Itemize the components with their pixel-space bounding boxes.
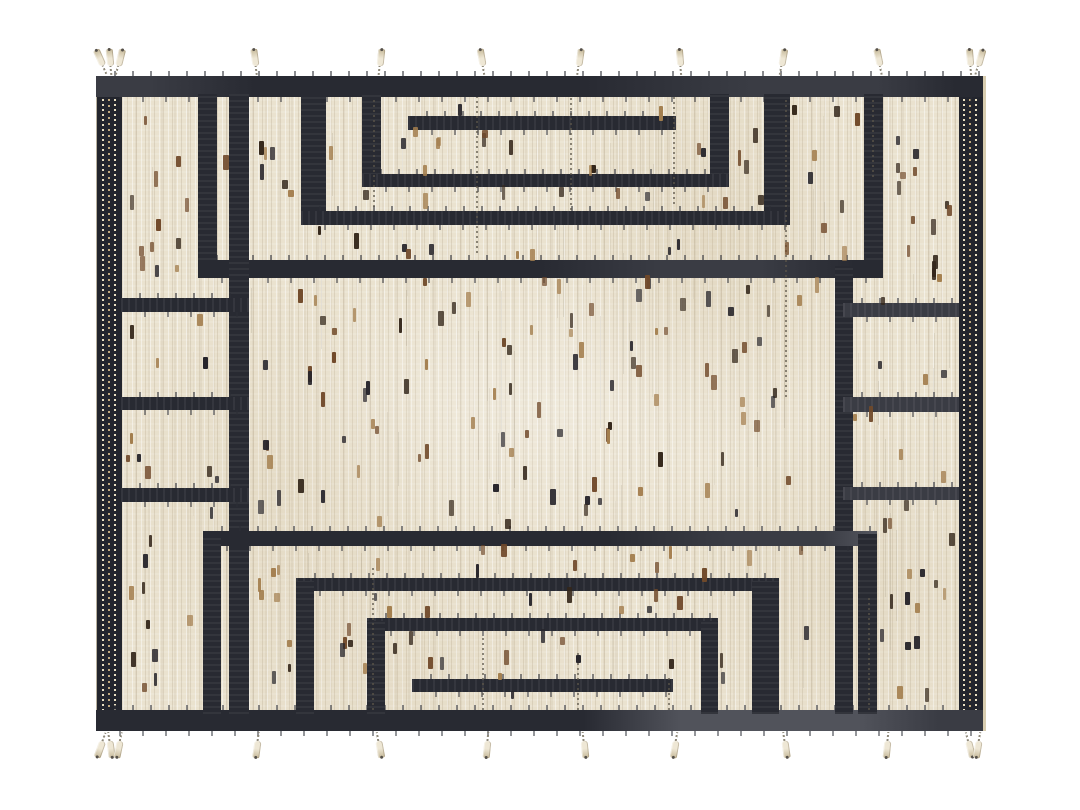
wool-fleck	[387, 606, 392, 618]
wool-fleck	[366, 381, 370, 395]
weave-streak	[693, 265, 694, 299]
wool-fleck	[812, 150, 817, 161]
weave-streak	[890, 513, 891, 650]
wool-fleck	[923, 374, 928, 385]
tassel-tuft	[106, 741, 115, 759]
weave-streak	[639, 373, 640, 444]
weave-streak	[398, 432, 399, 486]
wool-fleck	[840, 200, 844, 213]
wool-fleck	[569, 329, 573, 337]
weave-streak	[610, 143, 611, 274]
wool-fleck	[308, 371, 312, 385]
wool-fleck	[550, 489, 556, 505]
wool-fleck	[606, 428, 610, 442]
weave-streak	[619, 110, 620, 227]
wool-fleck	[754, 420, 760, 432]
wool-fleck	[425, 359, 428, 370]
tassel-tuft	[781, 741, 790, 759]
tassel-string	[965, 732, 969, 741]
wool-fleck	[505, 519, 511, 529]
wool-fleck	[523, 466, 527, 480]
weave-streak	[612, 593, 613, 692]
wool-fleck	[702, 568, 707, 582]
tassel-string	[879, 66, 883, 75]
pattern-bar-right-box-line-2	[843, 397, 959, 412]
wool-fleck	[376, 558, 380, 571]
tassel-tuft	[575, 49, 584, 67]
wool-fleck	[883, 518, 887, 533]
wool-fleck	[449, 500, 454, 516]
pattern-bar-u1b-top-bar	[203, 531, 877, 546]
wool-fleck	[647, 278, 651, 289]
weave-streak	[501, 291, 502, 448]
tassel-string	[115, 66, 119, 75]
tassel-tuft	[965, 740, 976, 758]
pattern-bar-u2-right-leg	[710, 94, 729, 187]
fringe-tassel	[666, 731, 684, 759]
wool-fleck	[363, 663, 367, 674]
fringe-tassel	[248, 731, 265, 759]
weave-streak	[615, 501, 616, 671]
wool-fleck	[210, 507, 213, 519]
weave-streak	[724, 551, 725, 595]
wool-fleck	[589, 303, 594, 316]
wool-fleck	[287, 640, 292, 647]
wool-fleck	[677, 239, 680, 250]
wool-fleck	[418, 454, 421, 462]
wool-fleck	[509, 383, 512, 395]
wool-fleck	[608, 422, 612, 430]
wool-fleck	[598, 498, 602, 505]
weave-streak	[563, 217, 564, 317]
wool-fleck	[842, 246, 847, 261]
tassel-string	[376, 732, 380, 741]
wool-fleck	[567, 587, 572, 603]
pattern-bar-right-box-line-3	[843, 487, 959, 500]
wool-fleck	[890, 594, 893, 609]
tassel-string	[109, 66, 112, 75]
wool-fleck	[137, 454, 141, 462]
wool-fleck	[907, 245, 910, 257]
fringe-tassel	[570, 48, 587, 76]
weave-streak	[489, 388, 490, 479]
weave-streak	[934, 333, 935, 498]
wool-fleck	[318, 226, 321, 235]
fringe-tassel	[473, 48, 491, 76]
pattern-bar-u2-bottom-bar	[362, 174, 729, 187]
wool-fleck	[507, 345, 512, 355]
wool-fleck	[913, 167, 917, 176]
wool-fleck	[428, 657, 433, 669]
wool-fleck	[645, 192, 650, 201]
wool-fleck	[263, 360, 268, 370]
wool-fleck	[423, 165, 427, 176]
wool-fleck	[267, 455, 273, 469]
tassel-string	[886, 732, 889, 741]
pattern-bar-left-divider	[229, 94, 249, 714]
weave-streak	[759, 511, 760, 646]
warp-string	[868, 596, 870, 710]
warp-string	[668, 676, 670, 710]
wool-fleck	[509, 448, 514, 457]
wool-fleck	[404, 379, 409, 394]
wool-fleck	[401, 138, 406, 149]
wool-fleck	[767, 305, 770, 317]
weave-streak	[653, 164, 654, 223]
wool-fleck	[705, 363, 709, 377]
wool-fleck	[668, 247, 671, 255]
tassel-tuft	[873, 49, 883, 67]
pattern-bar-inner-bar-top	[408, 116, 676, 130]
wool-fleck	[638, 487, 643, 496]
wool-fleck	[425, 444, 429, 459]
wool-fleck	[853, 414, 857, 421]
tassel-string	[486, 732, 489, 741]
wool-fleck	[152, 649, 158, 662]
tassel-tuft	[882, 741, 891, 759]
tassel-string	[782, 732, 785, 741]
wool-fleck	[573, 354, 578, 370]
wool-fleck	[185, 198, 189, 212]
fringe-tassel	[479, 731, 496, 758]
wool-fleck	[223, 155, 229, 170]
wool-fleck	[354, 233, 359, 249]
pattern-bar-left-box-line-2	[121, 397, 249, 410]
wool-fleck	[363, 190, 369, 200]
wool-fleck	[934, 580, 938, 588]
wool-fleck	[155, 265, 159, 277]
weave-streak	[407, 240, 408, 296]
wool-fleck	[905, 592, 910, 605]
wool-fleck	[792, 105, 797, 115]
wool-fleck	[937, 274, 942, 282]
wool-fleck	[815, 277, 819, 293]
fringe-tassel	[869, 48, 888, 76]
weave-streak	[903, 381, 904, 509]
tassel-tuft	[669, 740, 679, 758]
wool-fleck	[493, 484, 499, 492]
warp-string	[476, 97, 478, 253]
wool-fleck	[288, 664, 291, 672]
wool-fleck	[176, 238, 181, 249]
product-photo	[0, 0, 1080, 810]
wool-fleck	[156, 219, 161, 231]
weave-streak	[332, 133, 333, 196]
weave-streak	[243, 213, 244, 374]
wool-fleck	[493, 388, 496, 400]
pattern-bar-u2-left-leg	[362, 94, 381, 187]
wool-fleck	[530, 249, 535, 261]
wool-fleck	[537, 402, 541, 418]
wool-fleck	[482, 133, 486, 147]
wool-fleck	[130, 195, 134, 210]
wool-fleck	[579, 342, 584, 358]
weave-streak	[308, 553, 309, 652]
wool-fleck	[423, 278, 427, 286]
wool-fleck	[154, 673, 157, 686]
wool-fleck	[150, 242, 154, 252]
wool-fleck	[144, 116, 147, 125]
wool-fleck	[215, 476, 219, 483]
weave-streak	[621, 485, 622, 608]
wool-fleck	[786, 476, 791, 485]
wool-fleck	[808, 172, 813, 184]
wool-fleck	[270, 147, 275, 160]
pattern-bar-u2b-right-leg	[701, 621, 718, 714]
wool-fleck	[501, 544, 507, 557]
wool-fleck	[821, 223, 827, 233]
weave-streak	[933, 368, 934, 511]
wool-fleck	[406, 249, 411, 259]
weave-streak	[652, 284, 653, 397]
wool-fleck	[834, 106, 840, 117]
pattern-bar-u1b-left-leg	[203, 534, 221, 714]
wool-fleck	[541, 629, 545, 643]
wool-fleck	[277, 565, 280, 575]
tassel-tuft	[93, 49, 106, 67]
wool-fleck	[321, 490, 325, 503]
pattern-bar-right-box-line-1	[843, 303, 959, 317]
wool-fleck	[721, 452, 724, 466]
wool-fleck	[271, 568, 276, 577]
weave-streak	[815, 149, 816, 251]
tassel-tuft	[965, 49, 973, 67]
wool-fleck	[126, 455, 130, 462]
wool-fleck	[258, 578, 261, 592]
fringe-tassel	[776, 731, 793, 759]
wool-fleck	[785, 242, 789, 255]
wool-fleck	[905, 642, 911, 650]
wool-fleck	[669, 659, 674, 669]
tassel-tuft	[93, 740, 105, 758]
tassel-tuft	[580, 741, 589, 759]
tassel-tuft	[113, 740, 123, 758]
wool-fleck	[511, 691, 514, 699]
wool-fleck	[899, 449, 903, 460]
tassel-tuft	[482, 741, 491, 759]
wool-fleck	[576, 655, 581, 663]
wool-fleck	[797, 295, 802, 306]
wool-fleck	[525, 430, 529, 438]
wool-fleck	[557, 279, 561, 294]
wool-fleck	[175, 265, 179, 272]
weave-streak	[661, 130, 662, 210]
wool-fleck	[592, 477, 597, 492]
wool-fleck	[945, 201, 949, 209]
wool-fleck	[471, 417, 475, 429]
wool-fleck	[619, 606, 624, 614]
tassel-string	[101, 732, 106, 741]
wool-fleck	[570, 313, 573, 328]
wool-fleck	[298, 479, 304, 493]
fringe-tassel	[109, 731, 128, 759]
fringe-tassel	[370, 731, 388, 759]
wool-fleck	[907, 569, 912, 579]
wool-fleck	[740, 397, 745, 407]
wool-fleck	[573, 560, 577, 571]
fringe-tassel	[962, 48, 978, 75]
weave-streak	[152, 167, 153, 249]
wool-fleck	[413, 127, 418, 137]
wool-fleck	[949, 533, 955, 546]
tassel-string	[102, 65, 107, 74]
pattern-bar-u1b-right-leg	[858, 534, 877, 714]
rug	[96, 76, 983, 731]
weave-streak	[823, 116, 824, 238]
pattern-bar-u15b-top-bar	[296, 578, 779, 591]
weave-streak	[193, 352, 194, 516]
wool-fleck	[357, 465, 360, 478]
weave-streak	[583, 285, 584, 345]
wool-fleck	[560, 637, 565, 645]
weave-streak	[402, 149, 403, 240]
wool-fleck	[509, 140, 513, 155]
weave-streak	[575, 449, 576, 605]
wool-fleck	[329, 146, 333, 160]
wool-fleck	[187, 615, 193, 626]
pattern-bar-u15b-right-leg	[752, 581, 779, 714]
wool-fleck	[452, 302, 456, 314]
wool-fleck	[154, 171, 158, 187]
fringe-tassel	[372, 48, 389, 75]
wool-fleck	[931, 219, 936, 235]
warp-string	[872, 97, 874, 177]
wool-fleck	[869, 406, 873, 422]
wool-fleck	[941, 471, 946, 483]
wool-fleck	[399, 318, 402, 333]
wool-fleck	[377, 516, 382, 527]
wool-fleck	[321, 392, 325, 407]
pattern-bar-bottom-band	[96, 710, 983, 731]
wool-fleck	[702, 195, 705, 208]
tassel-tuft	[376, 49, 385, 67]
wool-fleck	[530, 325, 533, 335]
wool-fleck	[932, 261, 936, 277]
wool-fleck	[423, 193, 428, 209]
wool-fleck	[374, 593, 377, 601]
wool-fleck	[773, 388, 777, 398]
pattern-bar-u15-bottom-bar	[301, 211, 790, 225]
tassel-tuft	[972, 740, 982, 758]
wool-fleck	[481, 545, 485, 555]
wool-fleck	[320, 316, 326, 325]
fringe-tassel	[879, 731, 896, 758]
wool-fleck	[933, 255, 938, 269]
tassel-string	[974, 66, 978, 75]
tassel-string	[255, 66, 258, 75]
weave-streak	[377, 560, 378, 612]
wool-fleck	[259, 141, 264, 155]
weave-streak	[625, 535, 626, 588]
wool-fleck	[298, 289, 303, 303]
wool-fleck	[348, 640, 353, 647]
wool-fleck	[332, 328, 337, 335]
wool-fleck	[636, 289, 642, 302]
tassel-string	[257, 732, 260, 741]
weave-streak	[234, 275, 235, 368]
weave-streak	[714, 410, 715, 485]
wool-fleck	[804, 626, 809, 640]
wool-fleck	[145, 466, 151, 479]
wool-fleck	[880, 629, 884, 642]
fringe-tassel	[90, 730, 112, 759]
weave-streak	[623, 253, 624, 374]
tassel-tuft	[115, 49, 126, 67]
wool-fleck	[438, 311, 444, 326]
wool-fleck	[753, 128, 758, 143]
weave-streak	[887, 488, 888, 520]
pattern-bar-u15b-left-leg	[296, 581, 314, 714]
wool-fleck	[308, 366, 312, 382]
fringe-tassel	[773, 48, 791, 76]
weave-streak	[557, 601, 558, 649]
wool-fleck	[664, 327, 668, 335]
weave-streak	[876, 430, 877, 604]
wool-fleck	[258, 500, 264, 514]
wool-fleck	[589, 165, 592, 176]
wool-fleck	[146, 620, 150, 629]
weave-streak	[487, 306, 488, 401]
wool-fleck	[758, 195, 764, 205]
wool-fleck	[655, 562, 659, 573]
wool-fleck	[139, 246, 144, 256]
weave-streak	[858, 353, 859, 419]
wool-fleck	[458, 104, 462, 116]
wool-fleck	[728, 307, 734, 316]
wool-fleck	[771, 396, 775, 408]
weave-streak	[918, 493, 919, 638]
weave-streaks-layer	[96, 76, 983, 731]
weave-streak	[144, 455, 145, 629]
wool-fleck	[156, 358, 159, 368]
weave-streak	[457, 303, 458, 409]
wool-fleck	[723, 197, 728, 209]
warp-string	[577, 651, 579, 710]
weave-streak	[813, 189, 814, 276]
weave-streak	[321, 204, 322, 349]
pattern-bar-u1-bottom-bar	[198, 260, 883, 278]
wool-fleck	[260, 164, 264, 180]
wool-fleck	[904, 500, 909, 511]
fringe-layer	[96, 76, 983, 731]
pattern-layer	[96, 76, 983, 731]
weave-streak	[713, 530, 714, 589]
wool-fleck	[353, 308, 356, 322]
wool-fleck	[705, 483, 710, 498]
wool-fleck	[896, 163, 900, 173]
wool-fleck	[636, 365, 642, 377]
wool-fleck	[855, 113, 860, 126]
selvedge-band-right	[959, 76, 986, 731]
wool-fleck	[878, 361, 882, 369]
wool-fleck	[669, 546, 672, 559]
tassel-tuft	[105, 49, 114, 67]
weave-streak	[885, 439, 886, 597]
wool-fleck	[343, 637, 347, 649]
tassel-string	[978, 732, 982, 741]
wool-fleck	[437, 137, 441, 146]
wool-fleck	[738, 150, 741, 166]
wool-fleck	[947, 205, 952, 216]
tassel-tuft	[250, 49, 259, 67]
wool-fleck	[264, 147, 267, 160]
wool-fleck	[440, 657, 444, 670]
flecks-layer	[96, 76, 983, 731]
wool-fleck	[529, 593, 532, 606]
tassel-string	[675, 732, 679, 741]
warp-strings-layer	[96, 76, 983, 731]
wool-fleck	[659, 106, 663, 121]
